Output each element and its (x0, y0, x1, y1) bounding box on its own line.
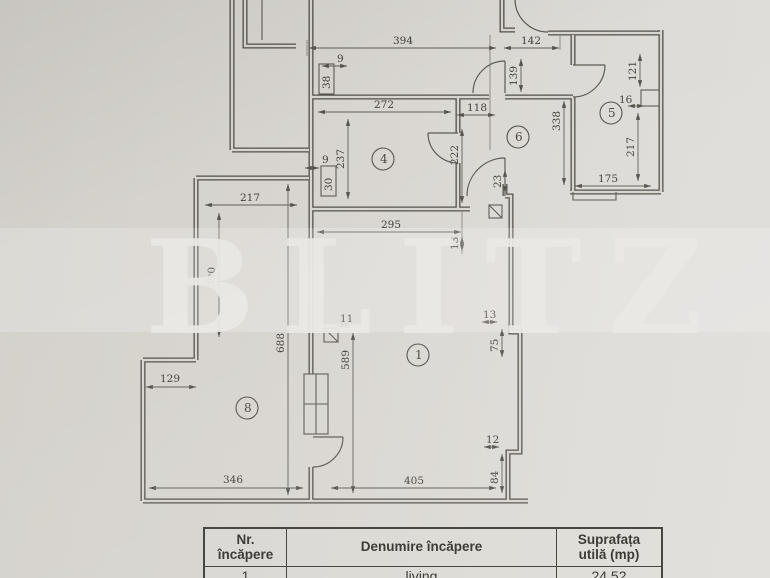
dim-label-129: 129 (160, 373, 180, 385)
dim-label-118: 118 (467, 102, 487, 114)
table-row-nr: 1 (205, 567, 287, 578)
table-header-suprafata: Suprafața utilă (mp) (557, 529, 661, 567)
dim-label-30: 30 (323, 178, 335, 191)
table-cell-denumire: living (406, 569, 438, 578)
dim-label-222: 222 (449, 145, 461, 165)
room-number-5: 5 (608, 106, 616, 120)
dim-label-12: 12 (486, 434, 499, 446)
cased-opening-divider (304, 374, 328, 434)
table-header-denumire: Denumire încăpere (287, 529, 557, 567)
dim-label-405: 405 (404, 475, 424, 487)
table-cell-suprafata: 24,52 (591, 569, 626, 578)
table-header-nr-line1: Nr. (236, 533, 254, 548)
dim-label-84: 84 (489, 470, 501, 484)
room-number-8: 8 (244, 401, 252, 415)
dim-label-121: 121 (627, 61, 639, 81)
niche-box-16 (641, 90, 659, 106)
dim-label-272: 272 (374, 99, 394, 111)
table-header-denumire-label: Denumire încăpere (361, 540, 483, 555)
table-header-suprafata-line2: utilă (mp) (579, 548, 640, 563)
dim-label-23: 23 (492, 175, 504, 188)
floor-plan-photo: 394 142 9 38 139 121 16 272 118 338 237 … (0, 0, 770, 578)
dim-label-217-room5: 217 (625, 137, 637, 157)
dim-label-346: 346 (223, 474, 243, 486)
dim-label-9b: 9 (322, 154, 329, 166)
wall-segment (245, 0, 296, 46)
table-header-suprafata-line1: Suprafața (578, 533, 640, 548)
dim-label-175: 175 (598, 173, 618, 185)
dim-label-142: 142 (521, 35, 541, 47)
dim-label-9a: 9 (337, 53, 344, 65)
floor-plan-drawing: 394 142 9 38 139 121 16 272 118 338 237 … (0, 0, 770, 578)
wall-segment (245, 0, 296, 46)
dim-label-217-room8: 217 (240, 192, 260, 204)
room-schedule-table: Nr. încăpere Denumire încăpere Suprafața… (203, 527, 663, 578)
door-entrance (515, 0, 548, 32)
room-number-6: 6 (515, 130, 523, 144)
dim-label-38: 38 (321, 76, 333, 89)
door-corridor (473, 61, 505, 93)
watermark-text: BLITZ (145, 211, 729, 364)
table-cell-nr: 1 (242, 569, 250, 578)
table-header-nr: Nr. încăpere (205, 529, 287, 567)
table-row-denumire: living (287, 567, 557, 578)
door-room5 (573, 65, 605, 97)
door-room8-living (313, 437, 343, 467)
room-number-4: 4 (380, 152, 388, 166)
dim-label-338: 338 (551, 111, 563, 131)
dim-label-16: 16 (619, 94, 633, 106)
table-row-suprafata: 24,52 (557, 567, 661, 578)
dim-label-139: 139 (508, 66, 520, 86)
table-header-nr-line2: încăpere (218, 548, 274, 563)
watermark: BLITZ (0, 211, 770, 364)
wall-segment (502, 0, 515, 30)
dim-label-394: 394 (393, 35, 413, 47)
dim-label-237: 237 (335, 149, 347, 169)
